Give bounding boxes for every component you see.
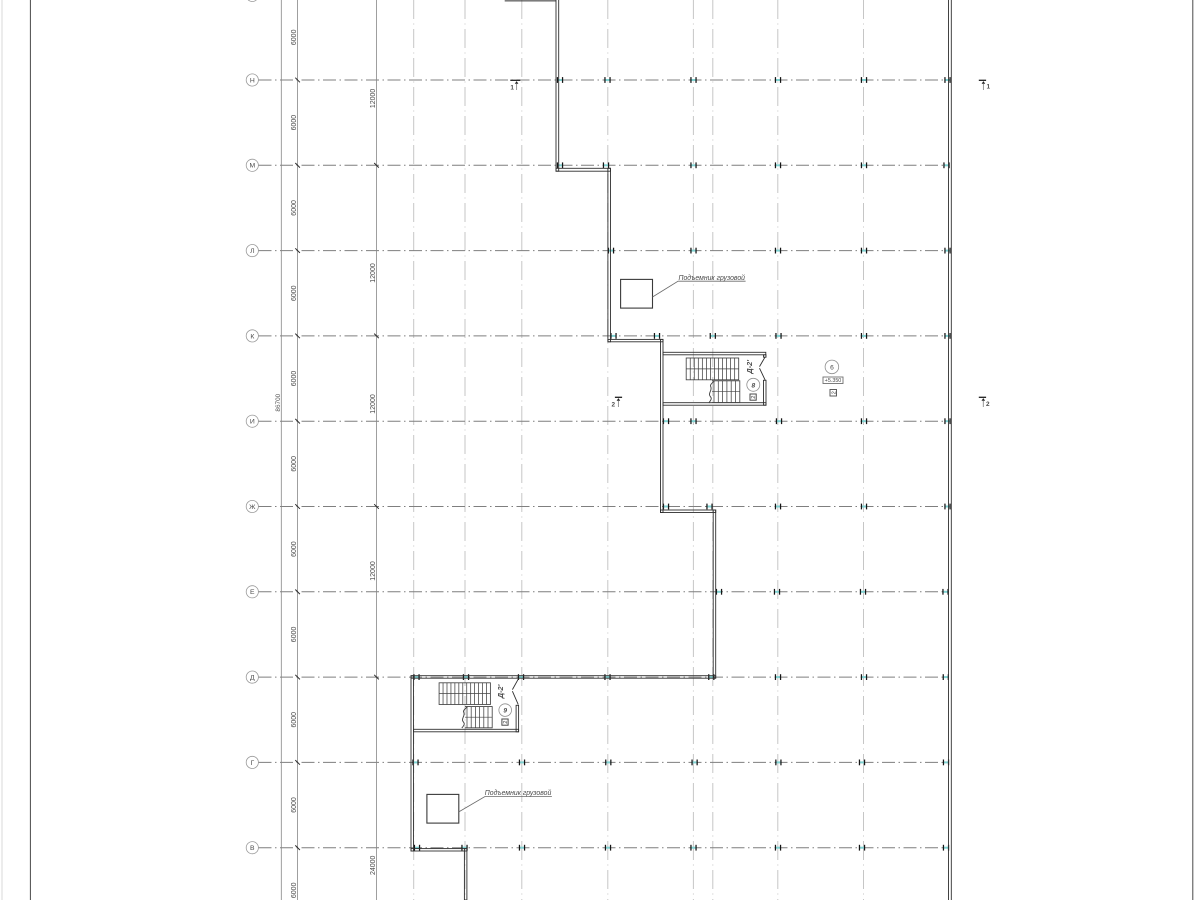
svg-text:24000: 24000 (370, 855, 377, 875)
svg-text:Е: Е (250, 589, 255, 596)
svg-text:1: 1 (510, 84, 514, 91)
svg-text:Н: Н (250, 77, 255, 84)
svg-text:М: М (249, 163, 255, 170)
svg-text:2: 2 (612, 401, 616, 408)
svg-text:Подъемник грузовой: Подъемник грузовой (679, 274, 746, 282)
svg-text:К: К (250, 333, 254, 340)
svg-text:Г: Г (250, 760, 254, 767)
svg-text:6000: 6000 (291, 200, 298, 216)
svg-text:6000: 6000 (291, 541, 298, 557)
svg-text:Д: Д (250, 675, 255, 682)
svg-text:+5.350: +5.350 (825, 378, 842, 384)
svg-text:6000: 6000 (291, 115, 298, 131)
svg-text:6000: 6000 (291, 712, 298, 728)
svg-text:Ж: Ж (249, 504, 256, 511)
svg-text:1: 1 (987, 84, 991, 91)
svg-text:2: 2 (986, 401, 990, 408)
svg-text:6000: 6000 (291, 29, 298, 45)
svg-text:6000: 6000 (291, 627, 298, 643)
svg-text:Л: Л (250, 248, 254, 255)
svg-text:8: 8 (751, 382, 755, 389)
svg-text:6000: 6000 (291, 456, 298, 472)
svg-text:6000: 6000 (291, 882, 298, 898)
svg-text:6000: 6000 (291, 797, 298, 813)
svg-text:12000: 12000 (370, 263, 377, 283)
svg-text:12000: 12000 (370, 89, 377, 109)
svg-text:Д-2': Д-2' (496, 684, 505, 699)
svg-text:В: В (250, 845, 255, 852)
svg-text:12000: 12000 (370, 394, 377, 414)
svg-text:Подъемник грузовой: Подъемник грузовой (485, 789, 552, 797)
svg-text:9: 9 (503, 708, 507, 715)
svg-text:Д-2': Д-2' (745, 360, 754, 375)
svg-text:86700: 86700 (275, 393, 282, 411)
svg-text:И: И (250, 419, 255, 426)
svg-text:2: 2 (831, 391, 837, 394)
svg-text:6000: 6000 (291, 285, 298, 301)
svg-text:6: 6 (830, 364, 834, 371)
svg-text:2: 2 (751, 395, 757, 398)
svg-text:12000: 12000 (370, 561, 377, 581)
svg-text:2: 2 (503, 720, 509, 723)
svg-text:6000: 6000 (291, 371, 298, 387)
